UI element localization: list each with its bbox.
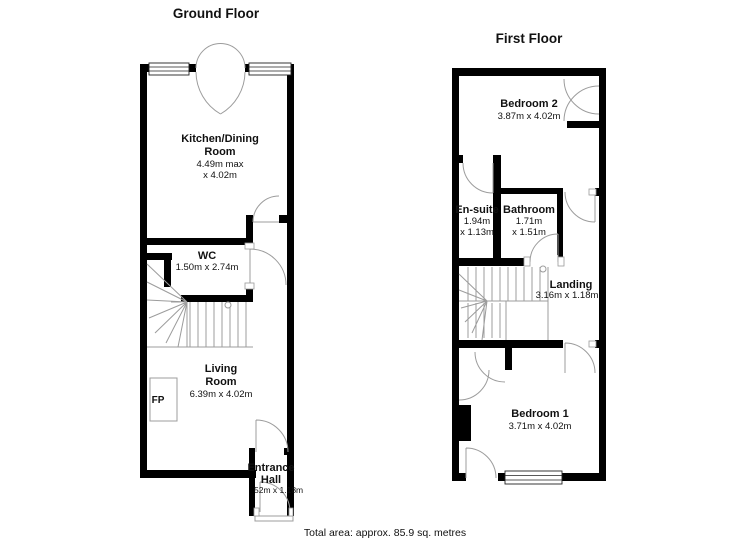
ff-stair-newel — [540, 266, 546, 272]
bedroom2-dims: 3.87m x 4.02m — [498, 111, 561, 122]
room-label-kitchen: Kitchen/Dining Room 4.49m max x 4.02m — [181, 133, 259, 181]
room-label-bathroom: Bathroom 1.71m x 1.51m — [503, 204, 555, 238]
bedroom1-lower-door — [466, 448, 496, 478]
landing-dims: 3.16m x 1.18m — [536, 290, 599, 301]
ff-stairs — [459, 266, 548, 340]
kitchen-dim1: 4.49m max — [197, 159, 244, 170]
room-label-bedroom2: Bedroom 2 3.87m x 4.02m — [498, 98, 561, 122]
total-area-text: Total area: approx. 85.9 sq. metres — [304, 527, 466, 539]
bedroom1-dims: 3.71m x 4.02m — [509, 421, 572, 432]
bathroom-door-gap — [530, 255, 558, 267]
gf-window-right — [249, 63, 291, 75]
first-floor-title: First Floor — [496, 31, 563, 46]
ff-window-bottom — [505, 471, 562, 484]
gf-stairs — [147, 264, 253, 347]
bedroom2-door — [565, 192, 595, 222]
gf-wc-door — [250, 249, 286, 285]
room-label-bedroom1: Bedroom 1 3.71m x 4.02m — [509, 408, 572, 432]
bedroom2-wardrobe-doors — [564, 79, 599, 121]
floor-plan-svg: Ground Floor Kitchen/Dining Room 4.49m m… — [0, 0, 750, 545]
kitchen-name-line2: Room — [204, 146, 235, 158]
ensuite-dim2: x 1.13m — [460, 227, 494, 238]
chimney-breast — [452, 405, 471, 441]
ensuite-door — [463, 163, 493, 193]
floor-plan-canvas: Ground Floor Kitchen/Dining Room 4.49m m… — [0, 0, 750, 545]
front-door-threshold — [255, 516, 293, 521]
entrance-dims: 52m x 1.18m — [254, 485, 303, 495]
understairs-cupboard-doors — [459, 352, 505, 400]
room-label-living: Living Room 6.39m x 4.02m — [190, 363, 253, 400]
ensuite-name: En-suite — [455, 204, 498, 216]
wc-dims: 1.50m x 2.74m — [176, 262, 239, 273]
entrance-name-line1: Entrance — [247, 462, 294, 474]
room-label-wc: WC 1.50m x 2.74m — [176, 250, 239, 273]
gf-window-left — [149, 63, 189, 75]
bathroom-dim1: 1.71m — [516, 216, 542, 227]
gf-entrance-door — [256, 420, 288, 452]
bedroom1-name: Bedroom 1 — [511, 408, 568, 420]
kitchen-name-line1: Kitchen/Dining — [181, 133, 259, 145]
ground-floor-plan: Ground Floor Kitchen/Dining Room 4.49m m… — [140, 6, 303, 521]
ensuite-dim1: 1.94m — [464, 216, 490, 227]
gf-kitchen-door — [253, 196, 279, 222]
room-label-entrance: Entrance Hall 52m x 1.18m — [247, 462, 303, 495]
ground-floor-title: Ground Floor — [173, 6, 260, 21]
living-name-line2: Room — [205, 376, 236, 388]
bedroom2-name: Bedroom 2 — [500, 98, 557, 110]
room-label-ensuite: En-suite 1.94m x 1.13m — [455, 204, 498, 238]
fireplace-label: FP — [152, 395, 165, 406]
bathroom-dim2: x 1.51m — [512, 227, 546, 238]
bathroom-name: Bathroom — [503, 204, 555, 216]
living-dims: 6.39m x 4.02m — [190, 389, 253, 400]
first-floor-plan: First Floor Bedroom 2 3.87m x 4.02m En-s… — [452, 31, 606, 484]
bedroom1-door — [565, 343, 595, 373]
room-label-landing: Landing 3.16m x 1.18m — [536, 279, 599, 301]
wc-name: WC — [198, 250, 216, 262]
living-name-line1: Living — [205, 363, 237, 375]
kitchen-dim2: x 4.02m — [203, 170, 237, 181]
gf-stair-newel — [225, 302, 231, 308]
gf-french-doors — [196, 43, 245, 114]
